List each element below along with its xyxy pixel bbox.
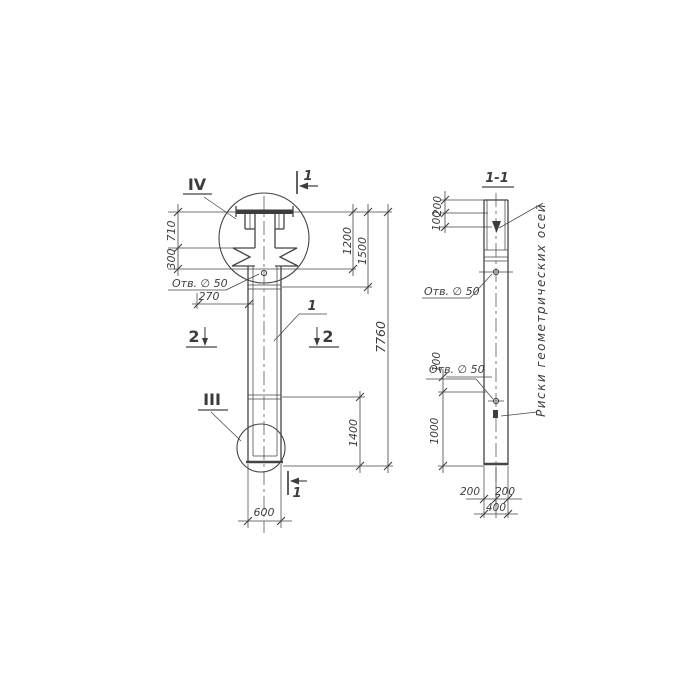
pile-shaft [246,266,283,462]
cut-1-top-label: 1 [303,169,312,184]
dim-chain-section-top: 200 100 [431,191,492,233]
detail-marker-iv-label: IV [188,175,207,194]
section-cut-2-left: 2 [186,327,217,347]
svg-text:600: 600 [254,506,275,519]
cut-arrow-icon [202,338,208,346]
axes-note-label: Риски геометрических осей [534,203,548,417]
technical-drawing: IV III 1 1 2 [0,0,700,700]
hole-note-left-view: Отв. ∅ 50 [168,274,259,290]
pile-cap-plate [236,210,293,215]
pile-head [245,214,284,248]
section-title-label: 1-1 [485,171,509,186]
hole-note-label: Отв. ∅ 50 [172,277,228,290]
dim-chain-left: 710 300 [165,204,182,276]
section-cut-1-bottom: 1 [288,471,307,501]
cut-2-right-label: 2 [322,327,333,346]
cut-2-left-label: 2 [188,327,199,346]
dim-300: 300 [165,249,178,270]
dim-chain-section-bottom: 200 200 400 [460,466,522,518]
section-title: 1-1 [482,171,514,187]
section-cut-1-top: 1 [297,169,318,194]
dim-400: 400 [486,502,506,514]
dim-200-bottom-right: 200 [495,486,515,498]
dim-7760: 7760 [373,321,388,353]
pile-elevation-view: IV III 1 1 2 [165,169,393,533]
dim-600: 600 [238,464,292,528]
section-1-1-view: 1-1 Отв. ∅ 50 [422,171,548,518]
part-ref-leader: 1 [274,299,327,341]
drawing-sheet: IV III 1 1 2 [0,0,700,700]
cut-arrow-icon [314,338,320,346]
axis-mark-bottom [493,410,498,418]
axis-mark-top [492,221,501,233]
pile-wings [232,248,298,266]
cut-1-bottom-label: 1 [292,486,301,501]
dim-chain-right: 1200 1500 7760 1400 [341,204,392,473]
detail-marker-iv: IV [183,175,236,219]
dim-1000: 1000 [429,417,441,444]
dim-1500: 1500 [356,237,369,265]
hole-note-upper: Отв. ∅ 50 [422,274,492,298]
detail-marker-iii: III [198,390,241,441]
detail-circle-bottom [237,424,285,472]
dim-100-top: 100 [431,211,443,231]
detail-marker-iii-label: III [203,390,221,409]
section-cut-2-right: 2 [309,327,339,347]
axes-note: Риски геометрических осей [499,203,548,417]
dim-1200: 1200 [341,227,354,255]
dim-710: 710 [165,221,178,242]
dim-200-bottom-left: 200 [460,486,480,498]
dim-1400: 1400 [347,419,360,447]
dim-270: 270 [192,290,254,309]
dim-100-mid: 100 [431,352,443,372]
section-hole-lower [488,398,504,418]
part-ref-label: 1 [307,299,316,314]
cut-arrow-icon [290,478,299,485]
